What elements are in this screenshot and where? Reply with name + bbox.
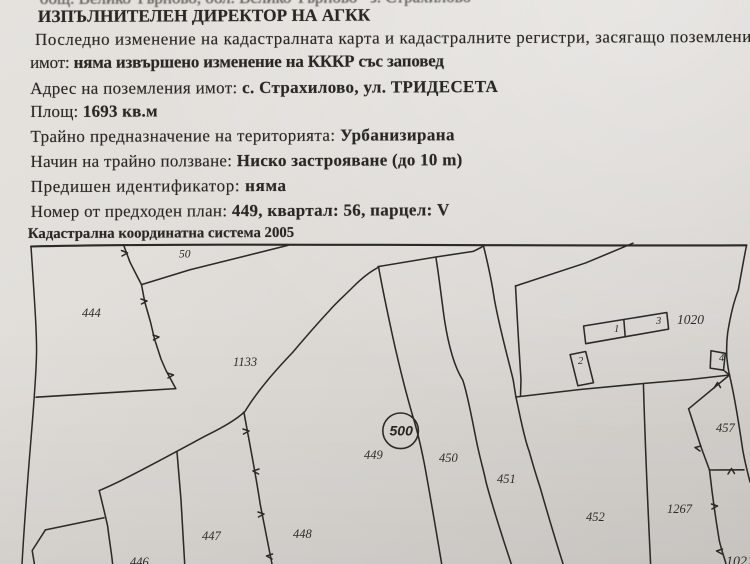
svg-text:1133: 1133 [233, 355, 257, 369]
svg-text:1020: 1020 [677, 312, 704, 327]
svg-text:500: 500 [390, 423, 414, 439]
svg-text:447: 447 [202, 529, 222, 543]
svg-text:457: 457 [716, 421, 736, 435]
svg-text:452: 452 [586, 510, 605, 524]
svg-text:1021: 1021 [726, 555, 750, 564]
svg-text:446: 446 [130, 555, 150, 564]
svg-text:3: 3 [655, 316, 661, 327]
svg-text:448: 448 [293, 527, 313, 541]
svg-text:451: 451 [497, 472, 516, 486]
svg-text:444: 444 [82, 306, 101, 320]
svg-text:2: 2 [578, 356, 584, 367]
svg-text:1: 1 [614, 324, 619, 335]
svg-text:450: 450 [439, 451, 459, 465]
svg-text:449: 449 [364, 448, 384, 462]
svg-text:1267: 1267 [667, 502, 693, 516]
svg-text:50: 50 [179, 249, 191, 261]
svg-text:4: 4 [719, 353, 725, 364]
